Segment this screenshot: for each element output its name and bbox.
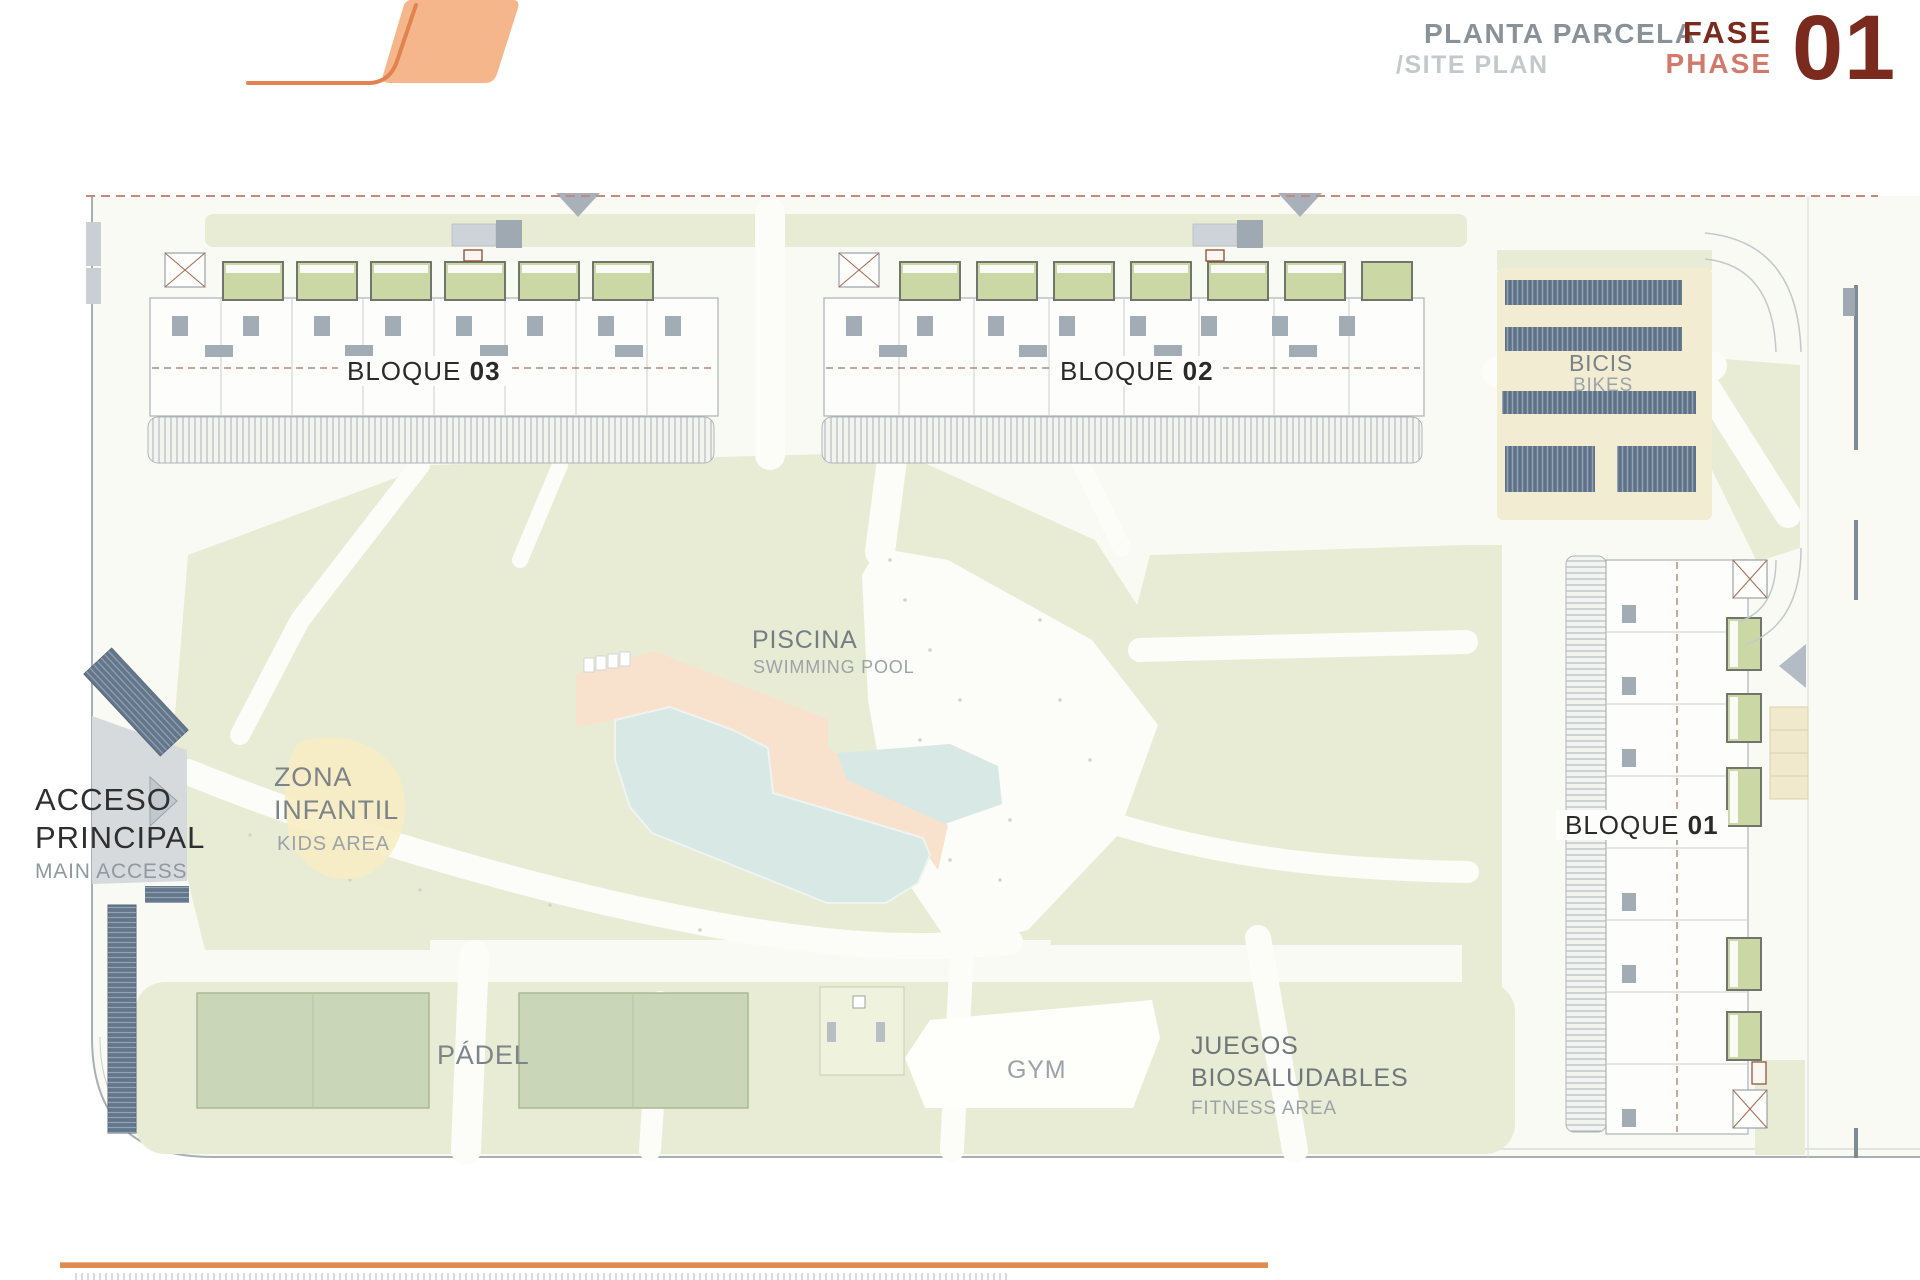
label-bloque-03: BLOQUE 03 <box>338 356 510 386</box>
phase-word-es: FASE <box>1620 16 1772 49</box>
site-plan-page: PLANTA PARCELA /SITE PLAN FASE PHASE 01 … <box>0 0 1920 1280</box>
parking-row <box>148 417 714 463</box>
label-padel: PÁDEL <box>437 1041 530 1070</box>
phase-number: 01 <box>1792 2 1896 94</box>
block-name: BLOQUE <box>347 356 461 386</box>
parking-column <box>1566 556 1606 1132</box>
label-bloque-02: BLOQUE 02 <box>1051 356 1223 386</box>
label-access-en: MAIN ACCESS <box>35 861 187 884</box>
footer-accent-rule <box>60 1262 1268 1268</box>
block-name: BLOQUE <box>1060 356 1174 386</box>
label-kids-es2: INFANTIL <box>274 796 399 825</box>
brand-logo <box>240 0 530 90</box>
label-bloque-01: BLOQUE 01 <box>1556 810 1728 840</box>
phase-words: FASE PHASE <box>1620 16 1772 80</box>
label-kids-en: KIDS AREA <box>277 834 390 856</box>
label-gym: GYM <box>1007 1057 1066 1084</box>
label-pool-en: SWIMMING POOL <box>753 658 914 677</box>
block-name: BLOQUE <box>1565 810 1679 840</box>
parking-row <box>822 417 1422 463</box>
page-title-en: /SITE PLAN <box>1396 52 1549 79</box>
label-access-es1: ACCESO <box>35 783 172 816</box>
label-bikes-es: BICIS <box>1569 351 1633 376</box>
block-number: 02 <box>1183 356 1214 386</box>
label-kids-es1: ZONA <box>274 763 352 792</box>
label-fitness-es2: BIOSALUDABLES <box>1191 1065 1408 1092</box>
label-fitness-en: FITNESS AREA <box>1191 1099 1337 1120</box>
fitness-equipment-pad <box>820 987 904 1075</box>
label-access-es2: PRINCIPAL <box>35 821 205 854</box>
block-number: 03 <box>470 356 501 386</box>
block-number: 01 <box>1688 810 1719 840</box>
phase-word-en: PHASE <box>1620 49 1772 79</box>
label-bikes-en: BIKES <box>1573 376 1633 397</box>
logo-stroke <box>248 5 416 83</box>
site-plan-drawing <box>0 0 1920 1280</box>
label-fitness-es1: JUEGOS <box>1191 1033 1299 1060</box>
footer-fine-print <box>75 1273 1010 1280</box>
label-pool-es: PISCINA <box>752 627 858 654</box>
street-parking-vertical <box>108 905 136 1133</box>
